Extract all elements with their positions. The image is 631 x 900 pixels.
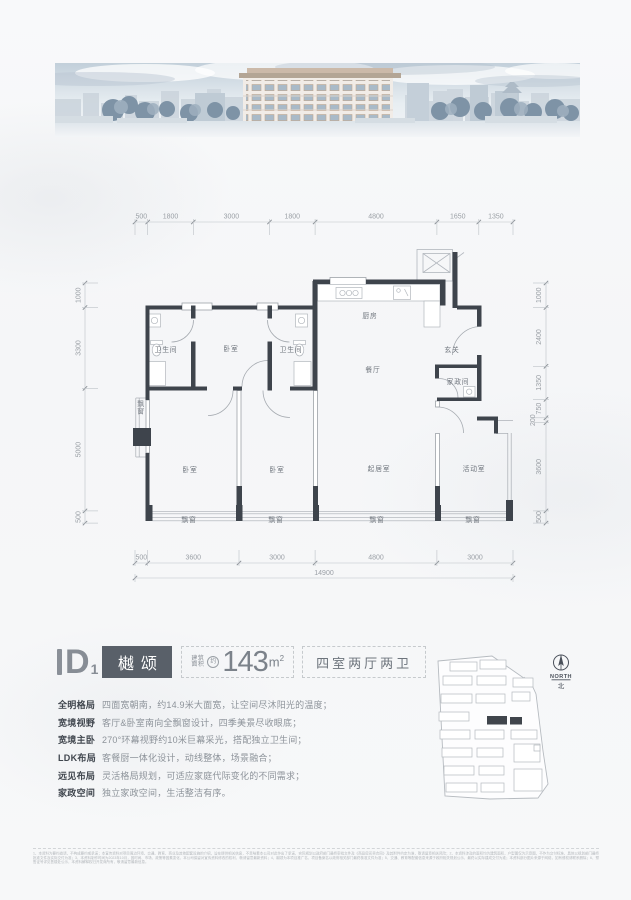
dimension-label: 3300: [76, 340, 83, 356]
room-label: 飘窗: [369, 515, 384, 524]
logo-bar: [57, 649, 62, 675]
room-label: 玄关: [444, 345, 459, 354]
dimension-label: 1350: [488, 214, 504, 221]
approx-circle: 约: [207, 656, 219, 668]
feature-label: 宽境视野: [58, 716, 102, 729]
dimension-label: 1000: [76, 287, 83, 303]
dimension-label: 3600: [186, 555, 202, 562]
feature-label: LDK布局: [58, 751, 102, 764]
dimension-label: 3000: [467, 555, 483, 562]
room-label: 飘窗: [137, 400, 145, 416]
highlighted-building: [487, 716, 522, 725]
dimension-label: 2400: [536, 329, 543, 345]
dimension-label: 500: [76, 511, 83, 523]
feature-desc: 客厅&卧室南向全飘窗设计，四季美景尽收眼底；: [102, 716, 301, 729]
unit-code: D: [65, 649, 90, 675]
disclaimer: 1、本资料为要约邀请，不构成要约或承诺；本宣传资料对项目周边环境、交通、教育、商…: [33, 848, 599, 878]
feature-row: 宽境视野 客厅&卧室南向全飘窗设计，四季美景尽收眼底；: [58, 714, 428, 732]
room-label: 家政间: [447, 377, 470, 386]
dimension-label: 3000: [269, 555, 285, 562]
room-label: 飘窗: [268, 515, 283, 524]
layout-text: 四室两厅两卫: [316, 653, 412, 672]
feature-row: 宽境主卧 270°环幕视野约10米巨幕采光，搭配独立卫生间；: [58, 731, 428, 749]
feature-row: 家政空间 独立家政空间，生活整洁有序。: [58, 784, 428, 802]
dimension-label: 14900: [314, 570, 334, 577]
room-label: 起居室: [368, 464, 391, 473]
feature-desc: 灵活格局规划，可适应家庭代际变化的不同需求；: [102, 769, 304, 782]
feature-label: 家政空间: [58, 786, 102, 799]
dimension-label: 200: [530, 414, 537, 426]
sink-icon: [394, 286, 411, 300]
room-label: 卫生间: [155, 345, 178, 354]
feature-desc: 客餐厨一体化设计，动线整体，场景融合；: [102, 751, 277, 764]
room-label: 飘窗: [181, 515, 196, 524]
feature-desc: 四面宽朝南，约14.9米大面宽，让空间尽沐阳光的温度；: [102, 698, 332, 711]
room-labels: 卫生间卧室卫生间厨房餐厅玄关家政间卧室卧室起居室活动室飘窗飘窗飘窗飘窗飘窗: [137, 311, 485, 524]
unit-name-badge: 樾颂: [102, 646, 172, 678]
dimension-label: 1800: [285, 214, 301, 221]
feature-row: LDK布局 客餐厨一体化设计，动线整体，场景融合；: [58, 749, 428, 767]
floorplan-brochure-page: 卫生间卧室卫生间厨房餐厅玄关家政间卧室卧室起居室活动室飘窗飘窗飘窗飘窗飘窗 50…: [0, 0, 631, 900]
door-arcs: [172, 320, 482, 433]
site-plan: NORTH 北: [430, 645, 580, 807]
site-plan-map: NORTH 北: [430, 645, 580, 807]
dimension-label: 500: [536, 511, 543, 523]
compass-icon: NORTH 北: [550, 655, 572, 691]
feature-desc: 270°环幕视野约10米巨幕采光，搭配独立卫生间；: [102, 733, 307, 746]
dimension-label: 5000: [76, 442, 83, 458]
compass-cn-label: 北: [558, 682, 565, 690]
feature-label: 全明格局: [58, 698, 102, 711]
dimension-label: 1000: [536, 287, 543, 303]
room-label: 活动室: [463, 464, 486, 473]
area-value: 143: [222, 646, 267, 679]
area-box: 建筑 面积 约 143 m2: [181, 646, 294, 678]
dimension-label: 3000: [224, 214, 240, 221]
feature-label: 宽境主卧: [58, 733, 102, 746]
dimension-label: 750: [536, 403, 543, 415]
compass-north-label: NORTH: [550, 674, 572, 680]
room-label: 餐厅: [365, 365, 380, 374]
layout-box: 四室两厅两卫: [302, 646, 426, 678]
room-label: 卧室: [269, 465, 284, 474]
feature-label: 远见布局: [58, 769, 102, 782]
room-label: 卫生间: [280, 345, 303, 354]
dimension-label: 4800: [368, 555, 384, 562]
unit-title-bar: D 1 樾颂 建筑 面积 约 143 m2 四室两厅两卫: [57, 646, 426, 678]
feature-list: 全明格局 四面宽朝南，约14.9米大面宽，让空间尽沐阳光的温度； 宽境视野 客厅…: [58, 696, 428, 802]
feature-row: 远见布局 灵活格局规划，可适应家庭代际变化的不同需求；: [58, 766, 428, 784]
dimension-label: 1350: [536, 375, 543, 391]
room-label: 卧室: [223, 344, 238, 353]
dimension-label: 4800: [368, 214, 384, 221]
dimension-label: 500: [135, 214, 147, 221]
dimension-label: 3600: [536, 459, 543, 475]
feature-desc: 独立家政空间，生活整洁有序。: [102, 786, 231, 799]
feature-row: 全明格局 四面宽朝南，约14.9米大面宽，让空间尽沐阳光的温度；: [58, 696, 428, 714]
bay-windows: [136, 398, 513, 521]
area-unit: m2: [269, 654, 284, 669]
dimension-label: 500: [135, 555, 147, 562]
dimension-label: 1650: [450, 214, 466, 221]
disclaimer-text: 1、本资料为要约邀请，不构成要约或承诺；本宣传资料对项目周边环境、交通、教育、商…: [33, 852, 599, 865]
room-label: 厨房: [362, 311, 377, 320]
unit-name: 樾颂: [118, 650, 164, 674]
area-prefix: 建筑 面积: [191, 656, 204, 669]
fixtures: [149, 285, 476, 398]
room-label: 飘窗: [465, 515, 480, 524]
dimension-label: 1800: [163, 214, 179, 221]
unit-code-sub: 1: [91, 661, 99, 677]
room-label: 卧室: [182, 465, 197, 474]
